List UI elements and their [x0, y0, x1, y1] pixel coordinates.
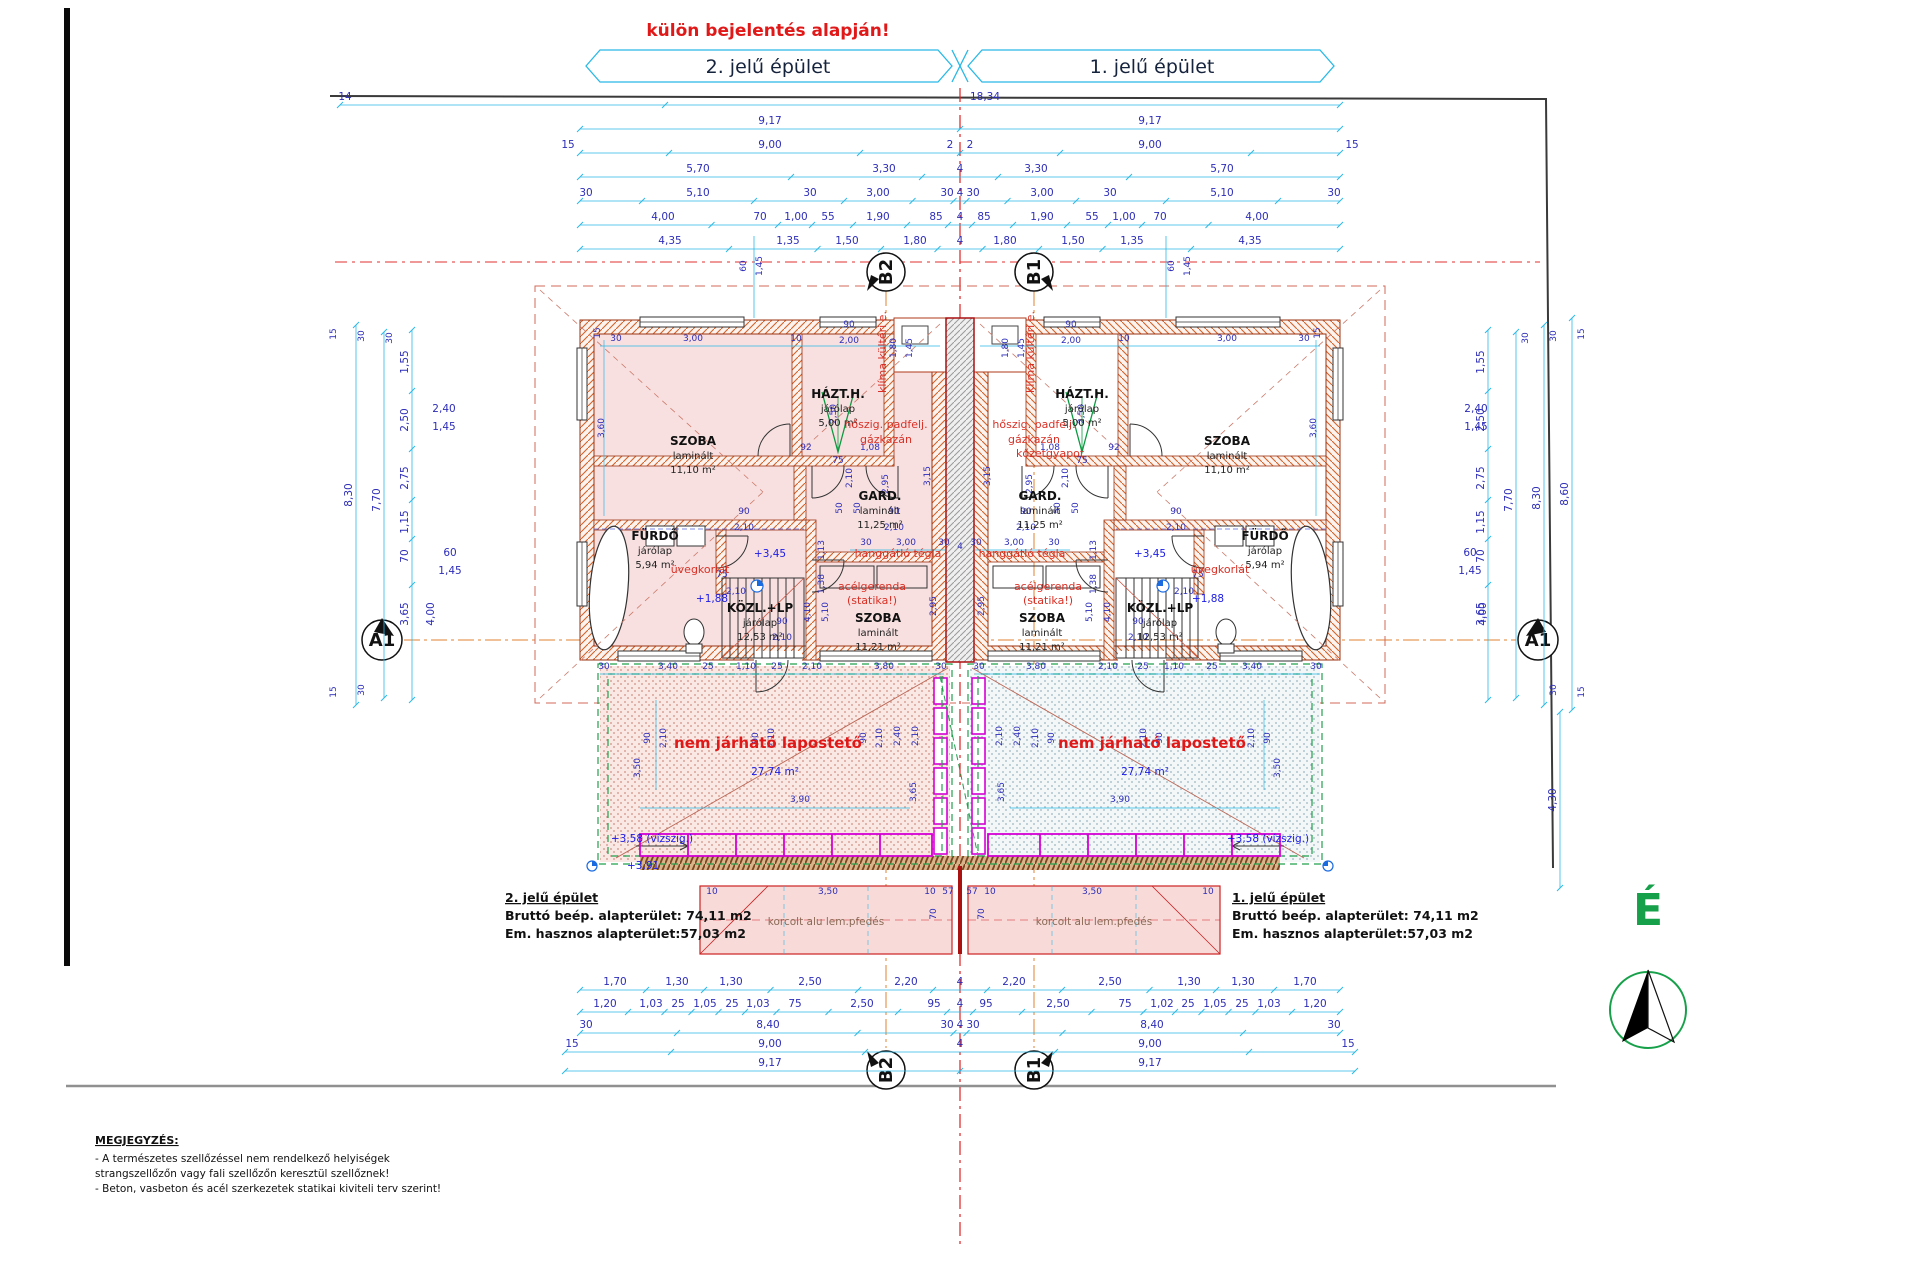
dim-label: 30: [1298, 334, 1310, 344]
room-name: SZOBA: [855, 611, 902, 625]
dim-label: 4,00: [1477, 602, 1489, 625]
dim-label: 1,10: [1164, 662, 1184, 672]
dim-label: 1,50: [1061, 235, 1084, 247]
dim-label: 3,40: [1242, 662, 1262, 672]
dim-label: 4: [957, 211, 964, 223]
level-label: +3,45: [754, 548, 786, 560]
level-label: +3,45: [1134, 548, 1166, 560]
dim-label: 4,35: [1238, 235, 1261, 247]
dim-label: 75: [1076, 456, 1087, 466]
annotation-hvac: klíma kültéri e.: [1024, 311, 1037, 393]
dim-label: 1,55: [1475, 350, 1487, 373]
dim-label: 1,30: [1177, 976, 1200, 988]
room-finish: laminált: [1020, 505, 1061, 517]
marker-b1-bottom: B1: [1024, 1057, 1045, 1083]
dim-label: 3,50: [818, 887, 838, 897]
dim-label: 15: [565, 1038, 578, 1050]
party-wall: [946, 318, 974, 662]
dim-label: 1,90: [866, 211, 889, 223]
dim-label: 1,45: [1458, 565, 1481, 577]
dim-label: 3,00: [683, 334, 703, 344]
dim-label: 70: [1153, 211, 1166, 223]
dim-label: 90: [1065, 320, 1077, 330]
dim-label: 9,17: [1138, 115, 1161, 127]
room-area: 11,21 m²: [1019, 642, 1065, 653]
dim-label: 15: [561, 139, 574, 151]
dim-label: 1,70: [1293, 976, 1316, 988]
center-gap-dim: 4: [957, 542, 963, 552]
dim-label: 25: [1137, 662, 1148, 672]
room-name: HÁZT.H.: [1055, 386, 1109, 401]
room-finish: járólap: [742, 617, 777, 629]
dim-label: 2,00: [839, 336, 859, 346]
room-finish: laminált: [860, 505, 901, 517]
dim-label: 2,50: [399, 408, 411, 431]
dim-label: 10: [984, 887, 996, 897]
dim-label: 18,34: [970, 91, 1000, 103]
dim-label: 25: [725, 998, 738, 1010]
dim-label: 25: [1206, 662, 1217, 672]
room-finish: járólap: [1142, 617, 1177, 629]
dim-label: 2,00: [1061, 336, 1081, 346]
dim-label: 2,10: [995, 726, 1005, 746]
dim-label: 15: [1341, 1038, 1354, 1050]
dim-label: 30: [1103, 187, 1116, 199]
dim-label: 57: [942, 887, 953, 897]
room-finish: laminált: [1022, 627, 1063, 639]
dim-label: 50: [1071, 502, 1081, 514]
dim-label: 30: [1521, 332, 1531, 344]
annotation-glass: üvegkorlát: [1191, 563, 1250, 576]
dim-label: 9,00: [758, 1038, 781, 1050]
dim-label: 30: [579, 187, 592, 199]
dim-label: 4,00: [1245, 211, 1268, 223]
summary-b2-gross: Bruttó beép. alapterület: 74,11 m2: [505, 908, 752, 923]
annotation-boiler1: hőszig. padfelj.: [844, 418, 927, 431]
dim-label: 1,45: [755, 256, 765, 276]
dim-label: 5,70: [686, 163, 709, 175]
level-label: +3,58 (vízszig.): [611, 833, 693, 845]
dim-label: 4: [957, 235, 964, 247]
dim-label: 1,15: [1475, 510, 1487, 533]
dim-label: 3,65: [909, 782, 919, 802]
dim-label: 55: [1085, 211, 1098, 223]
dim-label: 2,10: [1098, 662, 1118, 672]
annotation-beam1: acélgerenda: [838, 580, 906, 593]
dim-label: 9,00: [758, 139, 781, 151]
dim-label: 2,95: [977, 596, 987, 616]
dim-label: 1,00: [1112, 211, 1135, 223]
dim-label: 75: [1118, 998, 1131, 1010]
dim-label: 90: [776, 617, 788, 627]
dim-label: 70: [929, 908, 939, 920]
dim-label: 85: [929, 211, 942, 223]
dim-label: 1,30: [719, 976, 742, 988]
north-needle-outline: [1648, 970, 1674, 1042]
dim-label: 3,15: [923, 466, 933, 486]
dim-label: 25: [702, 662, 713, 672]
dim-label: 2,75: [1475, 466, 1487, 489]
dim-label: 1,45: [432, 421, 455, 433]
room-finish: járólap: [1247, 545, 1282, 557]
dim-label: 30: [1310, 662, 1322, 672]
summary-b2-net: Em. hasznos alapterület:57,03 m2: [505, 926, 746, 941]
dim-label: 2: [947, 139, 954, 151]
annotation-roof: nem járható lapostető: [1058, 734, 1246, 752]
dim-label: 2,10: [802, 662, 822, 672]
dim-label: 2,50: [850, 998, 873, 1010]
dim-label: 3,30: [1024, 163, 1047, 175]
dim-label: 30: [357, 684, 367, 696]
dim-label: 1,80: [889, 338, 899, 358]
annotation-boiler2: gázkazán: [1008, 433, 1060, 446]
dim-label: 1,00: [784, 211, 807, 223]
dim-label: 1,15: [399, 510, 411, 533]
annotation-sound: hanggátló tégla: [855, 547, 942, 560]
room-name: KÖZL.+LP: [1127, 600, 1194, 615]
dim-label: 4: [957, 976, 964, 988]
dim-label: 9,17: [758, 115, 781, 127]
dim-label: 1,02: [1150, 998, 1173, 1010]
dim-label: 30: [385, 332, 395, 344]
dim-label: 8,60: [1559, 482, 1571, 505]
dim-label: 3,90: [790, 795, 810, 805]
dim-label: 1,50: [835, 235, 858, 247]
dim-label: 70: [753, 211, 766, 223]
dim-label: 15: [329, 686, 339, 697]
dim-label: 2,10: [1031, 728, 1041, 748]
dim-label: 1,45: [438, 565, 461, 577]
dim-label: 2,75: [399, 466, 411, 489]
dim-label: 1,13: [817, 540, 827, 560]
dim-label: 3,80: [1026, 662, 1046, 672]
room-area: 11,25 m²: [857, 520, 903, 531]
dim-label: 50: [835, 502, 845, 514]
notes-heading: MEGJEGYZÉS:: [95, 1134, 179, 1147]
dim-label: 25: [771, 662, 782, 672]
dim-label: 1,30: [665, 976, 688, 988]
dim-label: 2,10: [1247, 728, 1257, 748]
dim-label: 10: [1118, 334, 1130, 344]
dim-label: 3,00: [866, 187, 889, 199]
dim-label: 90: [843, 320, 855, 330]
dim-label: 4,35: [658, 235, 681, 247]
dim-label: 3,15: [983, 466, 993, 486]
room-area: 11,21 m²: [855, 642, 901, 653]
dim-label: 1,45: [1464, 421, 1487, 433]
room-finish: laminált: [1207, 450, 1248, 462]
permit-warning: külön bejelentés alapján!: [646, 21, 889, 41]
dim-label: 5,10: [686, 187, 709, 199]
north-needle-filled: [1622, 970, 1648, 1042]
dim-label: 30: [966, 1019, 979, 1031]
dim-label: 2,10: [1061, 468, 1071, 488]
terrace-area: 27,74 m²: [751, 766, 799, 778]
title-bands: [586, 50, 1334, 82]
north-arrow: É: [1610, 883, 1686, 1048]
annotation-roof: nem járható lapostető: [674, 734, 862, 752]
room-area: 12,53 m²: [737, 632, 783, 643]
dim-label: 1,45: [1183, 256, 1193, 276]
dim-label: 3,65: [997, 782, 1007, 802]
dim-label: 10: [790, 334, 802, 344]
dim-label: 10: [924, 887, 936, 897]
room-name: FÜRDŐ: [631, 528, 678, 543]
summary-building1: 1. jelű épület Bruttó beép. alapterület:…: [1232, 890, 1479, 941]
dim-label: 2: [967, 139, 974, 151]
dim-label: 1,80: [993, 235, 1016, 247]
dim-label: 3,60: [597, 418, 607, 438]
dim-label: 4: [957, 998, 964, 1010]
dim-label: 3,00: [1030, 187, 1053, 199]
dim-label: 4: [957, 1038, 964, 1050]
dim-label: 3,40: [658, 662, 678, 672]
terrace-area: 27,74 m²: [1121, 766, 1169, 778]
dim-label: 1,35: [776, 235, 799, 247]
dim-label: 9,00: [1138, 139, 1161, 151]
dim-label: 5,10: [821, 602, 831, 622]
dim-label: 30: [1327, 1019, 1340, 1031]
room-name: SZOBA: [1204, 434, 1251, 448]
dim-label: 30: [940, 1019, 953, 1031]
dim-label: 1,05: [1203, 998, 1226, 1010]
room-area: 5,94 m²: [1245, 560, 1284, 571]
dim-label: 15: [1577, 686, 1587, 697]
room-finish: laminált: [858, 627, 899, 639]
annotation-beam2: (statika!): [847, 594, 897, 607]
annotation-boiler2: gázkazán: [860, 433, 912, 446]
dim-label: 60: [739, 260, 749, 272]
dim-label: 3,00: [1217, 334, 1237, 344]
dim-label: 2,40: [1013, 726, 1023, 746]
dim-label: 25: [1235, 998, 1248, 1010]
band-building1: 1. jelű épület: [1090, 56, 1215, 78]
room-name: GARD.: [1019, 489, 1062, 503]
annotation-boiler1: hőszig. padfelj.: [992, 418, 1075, 431]
dim-label: 75: [788, 998, 801, 1010]
room-name: GARD.: [859, 489, 902, 503]
dim-label: 15: [1313, 327, 1323, 338]
page-edge-bar: [64, 8, 70, 966]
room-finish: járólap: [637, 545, 672, 557]
dim-label: 15: [593, 327, 603, 338]
dim-label: 60: [1167, 260, 1177, 272]
summary-b1-title: 1. jelű épület: [1232, 890, 1325, 905]
dim-label: 4: [957, 1019, 964, 1031]
dim-label: 1,38: [1089, 574, 1099, 594]
dim-label: 57: [966, 887, 977, 897]
band-building2: 2. jelű épület: [706, 56, 831, 78]
dim-label: 1,80: [903, 235, 926, 247]
dim-label: 60: [443, 547, 456, 559]
dim-label: 2,20: [894, 976, 917, 988]
dim-label: 9,17: [1138, 1057, 1161, 1069]
dim-label: 15: [329, 328, 339, 339]
marker-b1-top: B1: [1024, 259, 1045, 285]
dim-label: 30: [579, 1019, 592, 1031]
annotation-beam1: acélgerenda: [1014, 580, 1082, 593]
dim-label: 90: [643, 732, 653, 744]
dim-label: 2,10: [726, 587, 746, 597]
dim-label: 2,20: [1002, 976, 1025, 988]
dim-label: 1,38: [817, 574, 827, 594]
dim-label: 90: [738, 507, 750, 517]
notes-line-3: - Beton, vasbeton és acél szerkezetek st…: [95, 1183, 441, 1195]
room-finish: járólap: [820, 403, 855, 415]
marker-a1-left: A1: [369, 630, 395, 651]
dim-label: 2,10: [875, 728, 885, 748]
dim-label: 30: [1549, 684, 1559, 696]
room-name: KÖZL.+LP: [727, 600, 794, 615]
dim-label: 1,13: [1089, 540, 1099, 560]
level-label: +3,58 (vízszig.): [1227, 833, 1309, 845]
dim-label: 1,03: [639, 998, 662, 1010]
dim-label: 55: [821, 211, 834, 223]
dim-label: 4,30: [1547, 788, 1559, 811]
dim-label: 30: [940, 187, 953, 199]
dim-label: 2,50: [1046, 998, 1069, 1010]
dim-label: 30: [610, 334, 622, 344]
dim-label: 1,20: [1303, 998, 1326, 1010]
dim-label: 4,00: [651, 211, 674, 223]
dim-label: 30: [357, 330, 367, 342]
dim-label: 1,10: [736, 662, 756, 672]
dim-label: 5,10: [1085, 602, 1095, 622]
dim-label: 1,35: [1120, 235, 1143, 247]
dim-label: 92: [1108, 443, 1119, 453]
level-label: +1,88: [696, 593, 728, 605]
room-area: 12,53 m²: [1137, 632, 1183, 643]
dim-label: 2,10: [911, 726, 921, 746]
dim-label: 2,40: [893, 726, 903, 746]
notes-line-2: strangszellőzőn vagy fali szellőzőn kere…: [95, 1168, 389, 1180]
annotation-roof_metal: korcolt alu lem.pfedés: [1036, 916, 1153, 928]
dim-label: 10: [706, 887, 718, 897]
dim-label: 14: [338, 91, 352, 103]
dim-label: 1,45: [905, 338, 915, 358]
room-area: 11,10 m²: [1204, 465, 1250, 476]
room-name: SZOBA: [1019, 611, 1066, 625]
annotation-roof_metal: korcolt alu lem.pfedés: [768, 916, 885, 928]
dim-label: 7,70: [371, 488, 383, 511]
dim-label: 70: [1475, 549, 1487, 562]
dim-label: 90: [1170, 507, 1182, 517]
dim-label: 15: [1577, 328, 1587, 339]
dim-label: 4,00: [425, 602, 437, 625]
dim-label: 1,90: [1030, 211, 1053, 223]
dim-label: 90: [1263, 732, 1273, 744]
dim-label: 8,30: [1531, 486, 1543, 509]
dim-label: 4,10: [803, 602, 813, 622]
room-area: 5,94 m²: [635, 560, 674, 571]
dim-label: 4: [957, 163, 964, 175]
marker-b2-bottom: B2: [876, 1057, 897, 1083]
notes-block: MEGJEGYZÉS: - A természetes szellőzéssel…: [95, 1134, 441, 1195]
dim-label: 92: [800, 443, 811, 453]
dim-label: 8,40: [756, 1019, 779, 1031]
dim-label: 3,65: [399, 602, 411, 625]
dim-label: 30: [803, 187, 816, 199]
room-name: HÁZT.H.: [811, 386, 865, 401]
dim-label: 2,50: [798, 976, 821, 988]
dim-label: 10: [1202, 887, 1214, 897]
dim-label: 2,10: [845, 468, 855, 488]
dim-label: 2,95: [929, 596, 939, 616]
dim-label: 1,05: [693, 998, 716, 1010]
dim-label: 25: [1181, 998, 1194, 1010]
north-label: É: [1633, 883, 1663, 936]
annotation-sound: hanggátló tégla: [979, 547, 1066, 560]
dim-label: 2,50: [1098, 976, 1121, 988]
room-finish: járólap: [1064, 403, 1099, 415]
dim-label: 5,70: [1210, 163, 1233, 175]
dim-label: 2,10: [1166, 523, 1186, 533]
room-name: SZOBA: [670, 434, 717, 448]
dim-label: 30: [1549, 330, 1559, 342]
floor-plan-drawing: B2 B1 B2 B1 A1 A1 külön bejelentés alapj…: [0, 0, 1920, 1280]
dim-label: 3,50: [1273, 758, 1283, 778]
dim-label: 95: [927, 998, 940, 1010]
annotation-hvac: klíma kültéri e.: [876, 311, 889, 393]
dim-label: 30: [966, 187, 979, 199]
dim-label: 70: [977, 908, 987, 920]
dim-label: 9,17: [758, 1057, 781, 1069]
summary-b1-net: Em. hasznos alapterület:57,03 m2: [1232, 926, 1473, 941]
room-area: 11,10 m²: [670, 465, 716, 476]
room-finish: laminált: [673, 450, 714, 462]
dim-label: 4,10: [1103, 602, 1113, 622]
dim-label: 3,30: [872, 163, 895, 175]
dim-label: 9,00: [1138, 1038, 1161, 1050]
dim-label: 70: [399, 549, 411, 562]
dim-label: 1,30: [1231, 976, 1254, 988]
dim-label: 30: [973, 662, 985, 672]
dim-label: 4: [957, 187, 964, 199]
dim-label: 7,70: [1503, 488, 1515, 511]
dim-label: 2,40: [432, 403, 455, 415]
room-name: FÜRDŐ: [1241, 528, 1288, 543]
room-area: 11,25 m²: [1017, 520, 1063, 531]
floor-plan-page: B2 B1 B2 B1 A1 A1 külön bejelentés alapj…: [0, 0, 1920, 1280]
dim-label: 1,03: [1257, 998, 1280, 1010]
dim-label: 3,50: [633, 758, 643, 778]
notes-line-1: - A természetes szellőzéssel nem rendelk…: [95, 1153, 391, 1165]
level-391: +3,91: [627, 860, 659, 872]
dim-label: 30: [598, 662, 610, 672]
dim-label: 1,70: [603, 976, 626, 988]
dim-label: 95: [979, 998, 992, 1010]
dim-label: 90: [1047, 732, 1057, 744]
summary-b2-title: 2. jelű épület: [505, 890, 598, 905]
dim-label: 1,03: [746, 998, 769, 1010]
annotation-glass: üvegkorlát: [671, 563, 730, 576]
dim-label: 3,80: [874, 662, 894, 672]
dim-label: 2,10: [659, 728, 669, 748]
dim-label: 85: [977, 211, 990, 223]
dim-label: 3,60: [1309, 418, 1319, 438]
dim-label: 30: [1327, 187, 1340, 199]
level-label: +1,88: [1192, 593, 1224, 605]
annotation-beam2: (statika!): [1023, 594, 1073, 607]
dim-label: 2,40: [1464, 403, 1487, 415]
dim-label: 25: [671, 998, 684, 1010]
dim-label: 5,10: [1210, 187, 1233, 199]
dim-label: 2,10: [734, 523, 754, 533]
dim-label: 8,40: [1140, 1019, 1163, 1031]
dim-label: 1,55: [399, 350, 411, 373]
summary-b1-gross: Bruttó beép. alapterület: 74,11 m2: [1232, 908, 1479, 923]
dim-label: 3,90: [1110, 795, 1130, 805]
